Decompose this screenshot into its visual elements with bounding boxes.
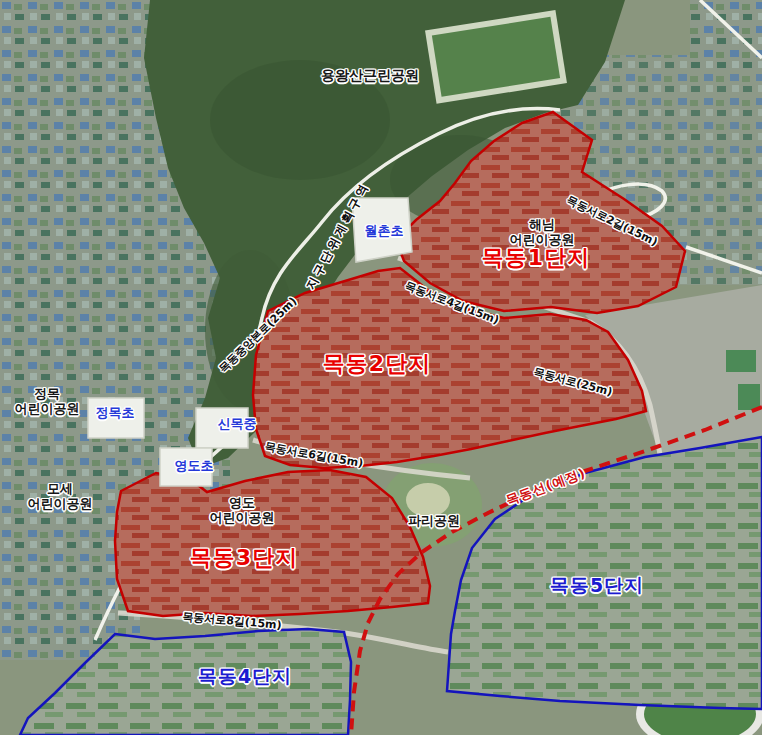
sports-court [738, 384, 760, 410]
pari-park-plaza [406, 483, 450, 517]
forest-texture [210, 60, 390, 180]
sports-court [726, 350, 756, 372]
map-base-layer [0, 0, 762, 735]
mokdong3-region [115, 470, 430, 616]
satellite-map: 용왕산근린공원 지구단위계획구역 월촌초 해님 어린이공원 목동1단지 목동서로… [0, 0, 762, 735]
urban-corner [690, 0, 762, 70]
